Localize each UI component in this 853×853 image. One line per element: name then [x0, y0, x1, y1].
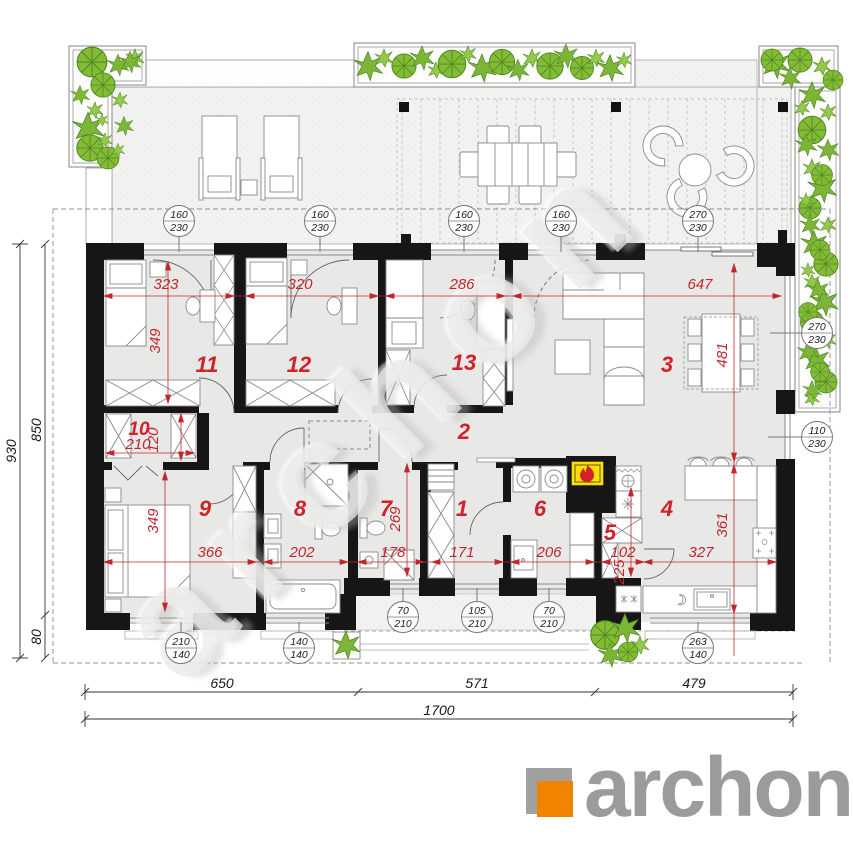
svg-text:210: 210 [393, 618, 412, 630]
svg-text:327: 327 [688, 544, 714, 561]
svg-text:105: 105 [468, 605, 486, 617]
svg-text:3: 3 [661, 352, 673, 377]
svg-text:210: 210 [171, 636, 190, 648]
svg-text:571: 571 [465, 675, 488, 691]
svg-text:160: 160 [455, 209, 473, 221]
svg-text:70: 70 [397, 605, 409, 617]
svg-text:1700: 1700 [423, 702, 454, 718]
svg-text:4: 4 [660, 496, 673, 521]
svg-text:270: 270 [688, 209, 707, 221]
svg-text:7: 7 [380, 496, 394, 521]
svg-text:80: 80 [28, 629, 44, 645]
svg-text:230: 230 [688, 222, 707, 234]
svg-text:481: 481 [714, 342, 731, 367]
svg-text:202: 202 [288, 544, 315, 561]
svg-text:850: 850 [28, 418, 44, 442]
svg-text:110: 110 [809, 425, 826, 437]
svg-text:140: 140 [290, 636, 308, 648]
svg-text:2: 2 [457, 419, 471, 444]
svg-text:171: 171 [449, 544, 474, 561]
svg-text:230: 230 [310, 222, 329, 234]
svg-text:210: 210 [539, 618, 558, 630]
svg-text:647: 647 [687, 276, 713, 293]
svg-text:160: 160 [552, 209, 570, 221]
svg-text:8: 8 [294, 496, 307, 521]
svg-text:366: 366 [197, 544, 223, 561]
svg-text:650: 650 [210, 675, 234, 691]
svg-text:323: 323 [153, 276, 179, 293]
svg-text:206: 206 [535, 544, 562, 561]
svg-text:230: 230 [807, 438, 826, 450]
svg-text:230: 230 [551, 222, 570, 234]
svg-text:361: 361 [714, 512, 731, 537]
svg-text:160: 160 [170, 209, 188, 221]
svg-text:140: 140 [172, 649, 190, 661]
svg-text:230: 230 [807, 334, 826, 346]
svg-text:1: 1 [456, 496, 468, 521]
svg-text:349: 349 [147, 328, 164, 354]
svg-text:479: 479 [682, 675, 706, 691]
svg-text:210: 210 [467, 618, 486, 630]
svg-text:225: 225 [611, 559, 628, 586]
svg-text:140: 140 [290, 649, 308, 661]
svg-text:160: 160 [311, 209, 329, 221]
svg-text:230: 230 [169, 222, 188, 234]
svg-text:140: 140 [689, 649, 707, 661]
svg-text:230: 230 [454, 222, 473, 234]
svg-text:263: 263 [688, 636, 707, 648]
svg-text:286: 286 [448, 276, 475, 293]
svg-text:102: 102 [610, 544, 636, 561]
svg-text:70: 70 [543, 605, 555, 617]
svg-text:349: 349 [145, 508, 162, 534]
svg-text:11: 11 [196, 352, 219, 377]
svg-text:178: 178 [380, 544, 406, 561]
svg-text:12: 12 [287, 352, 312, 377]
svg-text:5: 5 [604, 520, 617, 545]
svg-text:13: 13 [452, 350, 476, 375]
svg-text:archon: archon [584, 740, 852, 834]
svg-text:10: 10 [128, 419, 150, 440]
svg-text:320: 320 [287, 276, 313, 293]
svg-text:9: 9 [199, 496, 212, 521]
svg-text:6: 6 [534, 496, 547, 521]
svg-text:270: 270 [807, 321, 826, 333]
svg-text:930: 930 [3, 439, 19, 463]
